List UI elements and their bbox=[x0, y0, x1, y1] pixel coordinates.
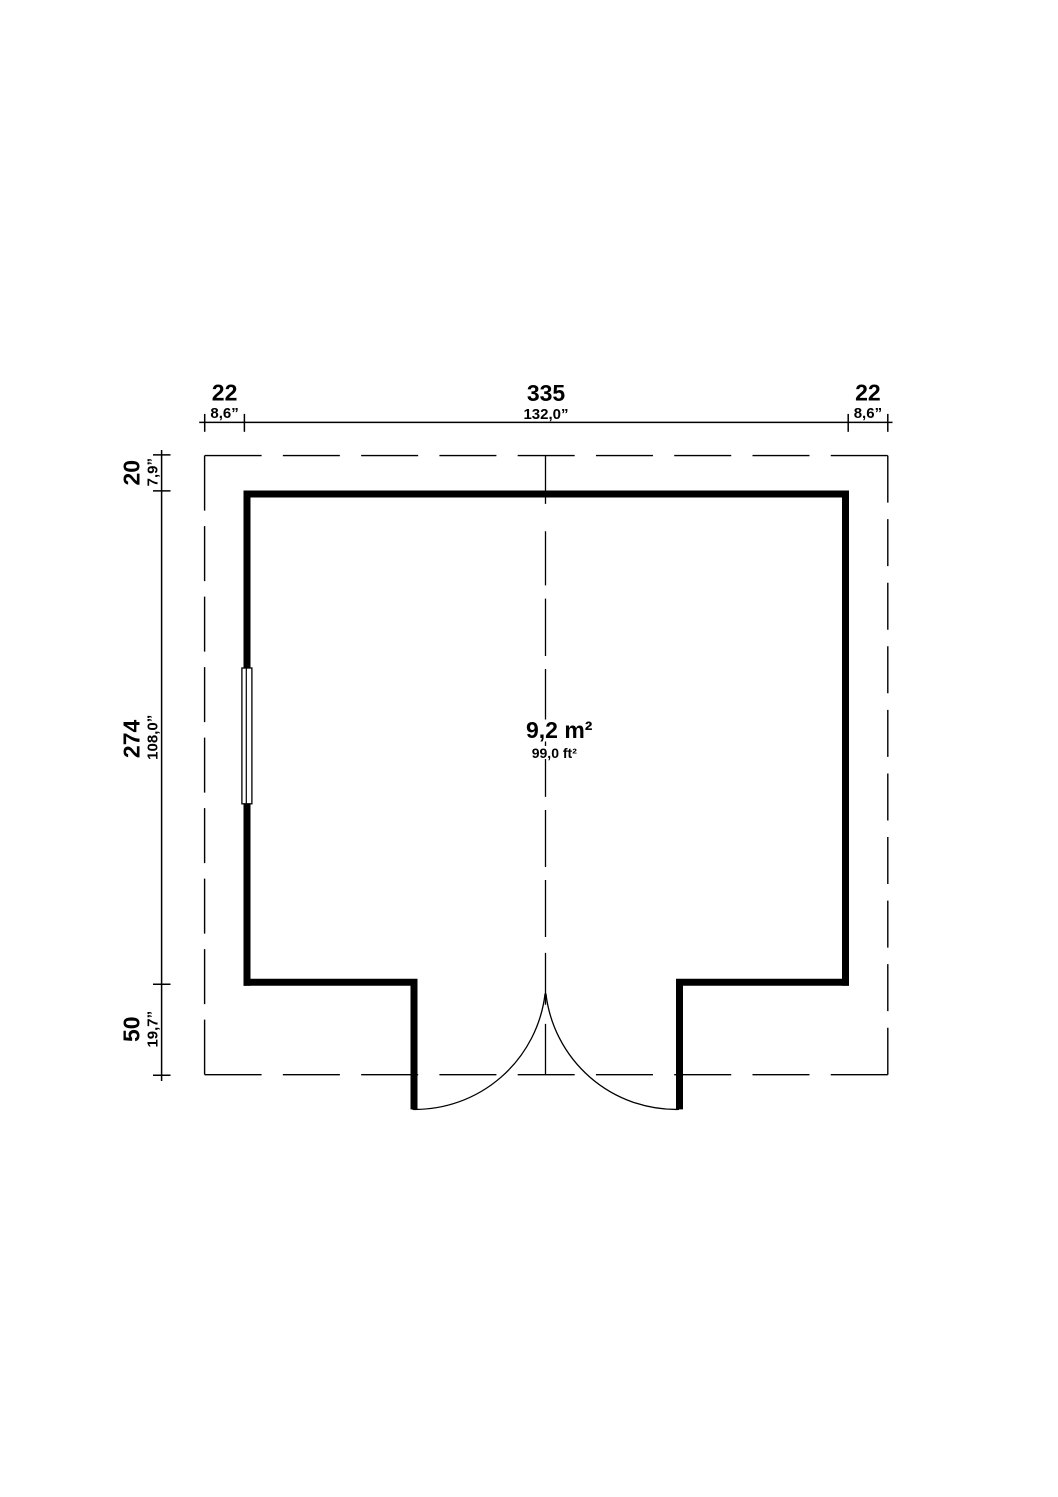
svg-text:8,6”: 8,6” bbox=[854, 405, 882, 422]
svg-text:108,0”: 108,0” bbox=[144, 715, 161, 760]
svg-text:274: 274 bbox=[119, 720, 145, 759]
svg-text:99,0 ft²: 99,0 ft² bbox=[532, 745, 577, 761]
svg-text:50: 50 bbox=[119, 1016, 145, 1042]
svg-text:9,2 m²: 9,2 m² bbox=[526, 717, 593, 743]
svg-text:7,9”: 7,9” bbox=[145, 458, 162, 486]
svg-text:22: 22 bbox=[212, 380, 238, 406]
svg-text:132,0”: 132,0” bbox=[523, 406, 568, 423]
svg-text:8,6”: 8,6” bbox=[210, 405, 238, 422]
svg-text:335: 335 bbox=[527, 380, 566, 406]
svg-text:19,7”: 19,7” bbox=[145, 1011, 162, 1048]
svg-text:20: 20 bbox=[119, 460, 145, 486]
svg-text:22: 22 bbox=[855, 380, 881, 406]
